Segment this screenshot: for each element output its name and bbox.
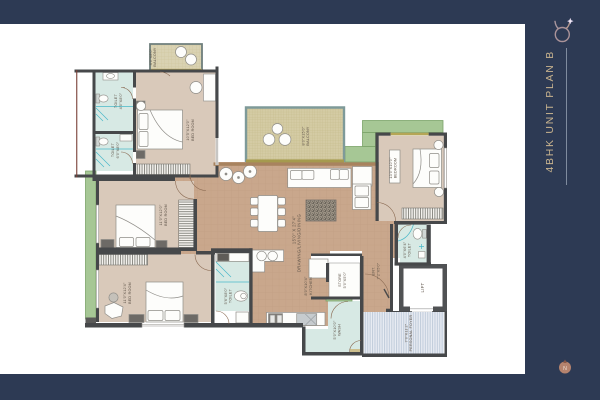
svg-text:BALCONY: BALCONY [153, 47, 157, 66]
svg-text:DRAWING/LIVING/DINING: DRAWING/LIVING/DINING [297, 214, 302, 272]
svg-text:PERSONAL FOYER: PERSONAL FOYER [409, 315, 413, 352]
svg-text:BED ROOM: BED ROOM [191, 119, 195, 141]
svg-text:BED ROOM: BED ROOM [164, 204, 168, 226]
svg-text:4BHK UNIT PLAN B: 4BHK UNIT PLAN B [545, 50, 556, 172]
svg-text:6'0"X8'0": 6'0"X8'0" [116, 141, 120, 158]
svg-text:ENT.: ENT. [372, 267, 376, 276]
svg-text:WASH: WASH [338, 324, 342, 336]
svg-text:TOILET: TOILET [229, 288, 233, 303]
svg-text:LIFT: LIFT [420, 282, 425, 292]
svg-text:TOILET: TOILET [111, 142, 115, 157]
svg-text:8'0"X10'4": 8'0"X10'4" [304, 276, 308, 295]
svg-text:7'0"X11'2": 7'0"X11'2" [405, 323, 409, 342]
svg-text:8'0"X15'0": 8'0"X15'0" [302, 126, 306, 145]
svg-text:10'5"X12'0": 10'5"X12'0" [186, 119, 190, 141]
svg-text:11'0"X12'0": 11'0"X12'0" [159, 204, 163, 225]
svg-text:TOILET: TOILET [114, 93, 118, 108]
svg-text:BEDROOM: BEDROOM [394, 158, 398, 179]
svg-text:13'0"X10'0": 13'0"X10'0" [389, 157, 393, 179]
svg-text:4'0"X8'0": 4'0"X8'0" [119, 92, 123, 109]
svg-text:5'0"X10'0": 5'0"X10'0" [333, 320, 337, 339]
svg-text:11'0"X12'4": 11'0"X12'4" [123, 282, 127, 303]
svg-text:BALCONY: BALCONY [306, 126, 310, 145]
svg-text:4'0"X8'0": 4'0"X8'0" [149, 48, 153, 65]
svg-text:KITCHEN: KITCHEN [309, 277, 313, 295]
svg-text:4'0"X6'4": 4'0"X6'4" [403, 241, 407, 258]
svg-text:N: N [563, 366, 567, 372]
svg-text:STORE: STORE [338, 273, 342, 287]
svg-text:TOILET: TOILET [408, 242, 412, 257]
svg-text:7'2"X5'0": 7'2"X5'0" [377, 262, 381, 279]
svg-text:15'0" X 27'4": 15'0" X 27'4" [292, 216, 297, 244]
svg-text:5'6"X8'0": 5'6"X8'0" [224, 287, 228, 304]
svg-text:BED ROOM: BED ROOM [128, 282, 132, 304]
svg-text:5'0"X5'0": 5'0"X5'0" [343, 271, 347, 288]
